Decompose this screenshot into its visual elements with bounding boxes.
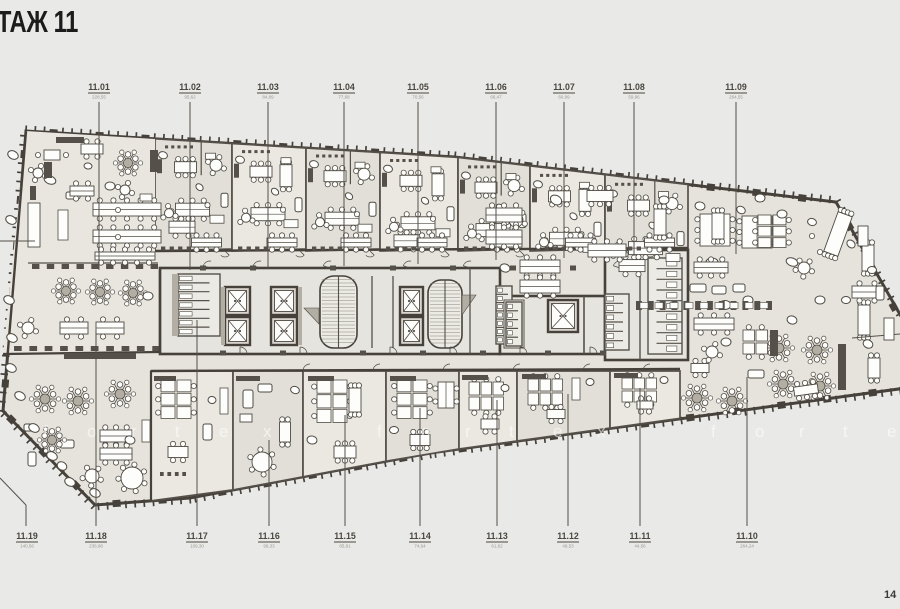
svg-text:11.04: 11.04 [333,82,355,92]
svg-text:84,89: 84,89 [262,95,274,100]
svg-text:t: t [843,422,848,441]
svg-text:r: r [131,422,137,441]
svg-text:x: x [597,422,606,441]
svg-text:r: r [799,422,805,441]
svg-text:11.08: 11.08 [623,82,645,92]
svg-text:ТАЖ 11: ТАЖ 11 [0,4,78,39]
svg-text:11.13: 11.13 [486,531,508,541]
svg-text:95,62: 95,62 [184,95,196,100]
svg-text:264,55: 264,55 [729,95,743,100]
svg-text:11.18: 11.18 [85,531,107,541]
svg-text:e: e [553,422,562,441]
svg-text:85,81: 85,81 [339,544,351,549]
svg-text:61,62: 61,62 [491,544,503,549]
svg-text:11.03: 11.03 [257,82,279,92]
svg-text:o: o [421,422,430,441]
svg-text:140,56: 140,56 [20,544,34,549]
svg-text:228,55: 228,55 [92,95,106,100]
svg-text:14: 14 [884,589,897,601]
svg-text:f: f [377,422,382,441]
svg-text:o: o [755,422,764,441]
svg-text:11.01: 11.01 [88,82,110,92]
svg-text:x: x [263,422,272,441]
svg-text:74,64: 74,64 [414,544,426,549]
svg-text:99,33: 99,33 [263,544,275,549]
svg-text:t: t [509,422,514,441]
svg-text:59,96: 59,96 [628,95,640,100]
svg-text:11.12: 11.12 [557,531,579,541]
svg-text:t: t [175,422,180,441]
svg-text:o: o [87,422,96,441]
svg-text:66,47: 66,47 [490,95,502,100]
svg-text:11.05: 11.05 [407,82,429,92]
svg-text:60,99: 60,99 [558,95,570,100]
svg-text:11.02: 11.02 [179,82,201,92]
svg-text:e: e [219,422,228,441]
svg-text:109,30: 109,30 [190,544,204,549]
svg-text:11.17: 11.17 [186,531,208,541]
svg-text:238,98: 238,98 [89,544,103,549]
svg-text:f: f [711,422,716,441]
svg-text:11.15: 11.15 [334,531,356,541]
svg-text:11.07: 11.07 [553,82,575,92]
svg-text:70,56: 70,56 [412,95,424,100]
svg-text:11.06: 11.06 [485,82,507,92]
svg-text:11.09: 11.09 [725,82,747,92]
svg-text:e: e [887,422,896,441]
svg-text:49,53: 49,53 [562,544,574,549]
svg-text:11.11: 11.11 [629,531,650,541]
svg-text:44,56: 44,56 [634,544,646,549]
svg-text:f: f [43,422,48,441]
svg-text:11.10: 11.10 [736,531,758,541]
svg-text:r: r [465,422,471,441]
svg-text:11.19: 11.19 [16,531,38,541]
svg-text:264,24: 264,24 [740,544,754,549]
svg-text:11.16: 11.16 [258,531,280,541]
svg-text:77,68: 77,68 [338,95,350,100]
svg-text:11.14: 11.14 [409,531,431,541]
